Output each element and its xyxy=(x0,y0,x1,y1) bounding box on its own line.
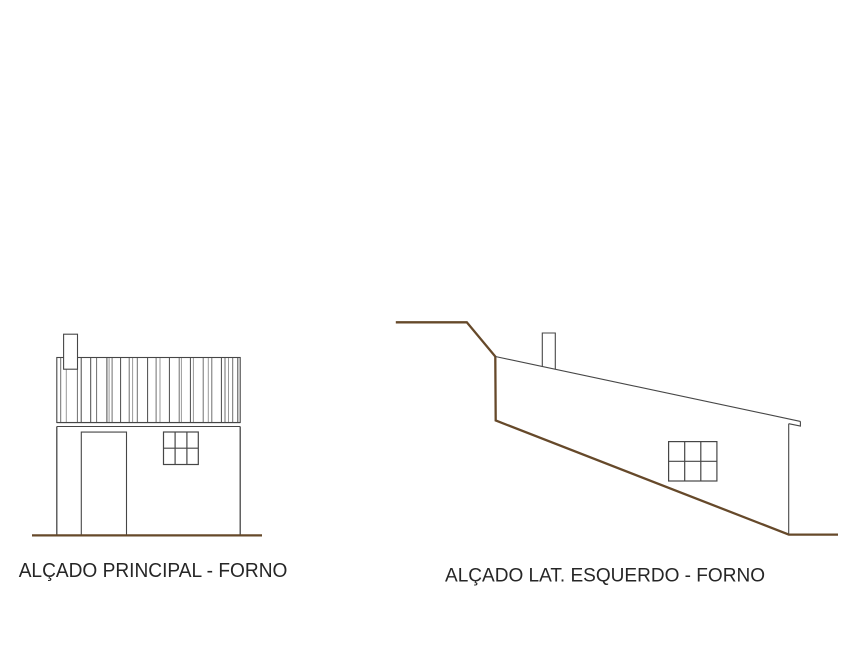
svg-text:ALÇADO LAT. ESQUERDO - FORNO: ALÇADO LAT. ESQUERDO - FORNO xyxy=(445,565,765,586)
svg-text:ALÇADO PRINCIPAL - FORNO: ALÇADO PRINCIPAL - FORNO xyxy=(19,560,288,582)
